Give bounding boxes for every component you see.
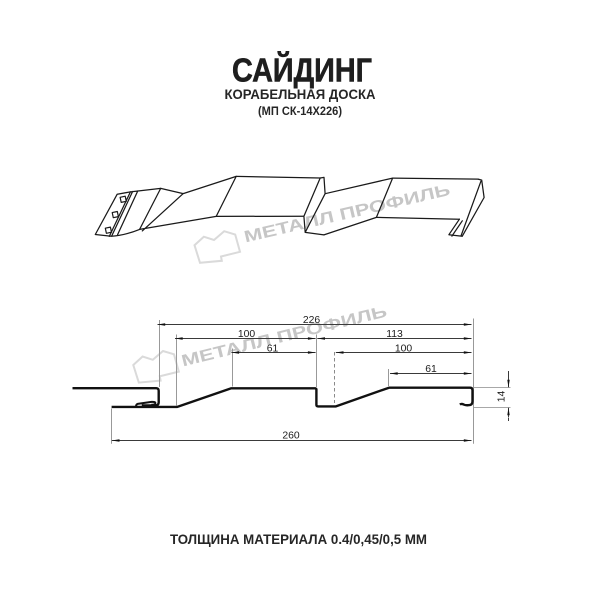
svg-text:100: 100: [395, 344, 413, 355]
svg-text:226: 226: [303, 315, 321, 326]
svg-text:113: 113: [386, 329, 403, 340]
svg-text:ТОЛЩИНА МАТЕРИАЛА 0.4/0,45/0,5: ТОЛЩИНА МАТЕРИАЛА 0.4/0,45/0,5 ММ: [170, 532, 427, 547]
svg-text:61: 61: [267, 344, 279, 355]
svg-text:КОРАБЕЛЬНАЯ ДОСКА: КОРАБЕЛЬНАЯ ДОСКА: [225, 87, 376, 102]
svg-text:61: 61: [425, 364, 437, 375]
svg-text:САЙДИНГ: САЙДИНГ: [232, 51, 372, 89]
svg-text:100: 100: [238, 329, 256, 340]
svg-text:14: 14: [497, 391, 508, 403]
svg-text:260: 260: [282, 430, 300, 441]
svg-text:(МП СК-14Х226): (МП СК-14Х226): [258, 105, 342, 118]
